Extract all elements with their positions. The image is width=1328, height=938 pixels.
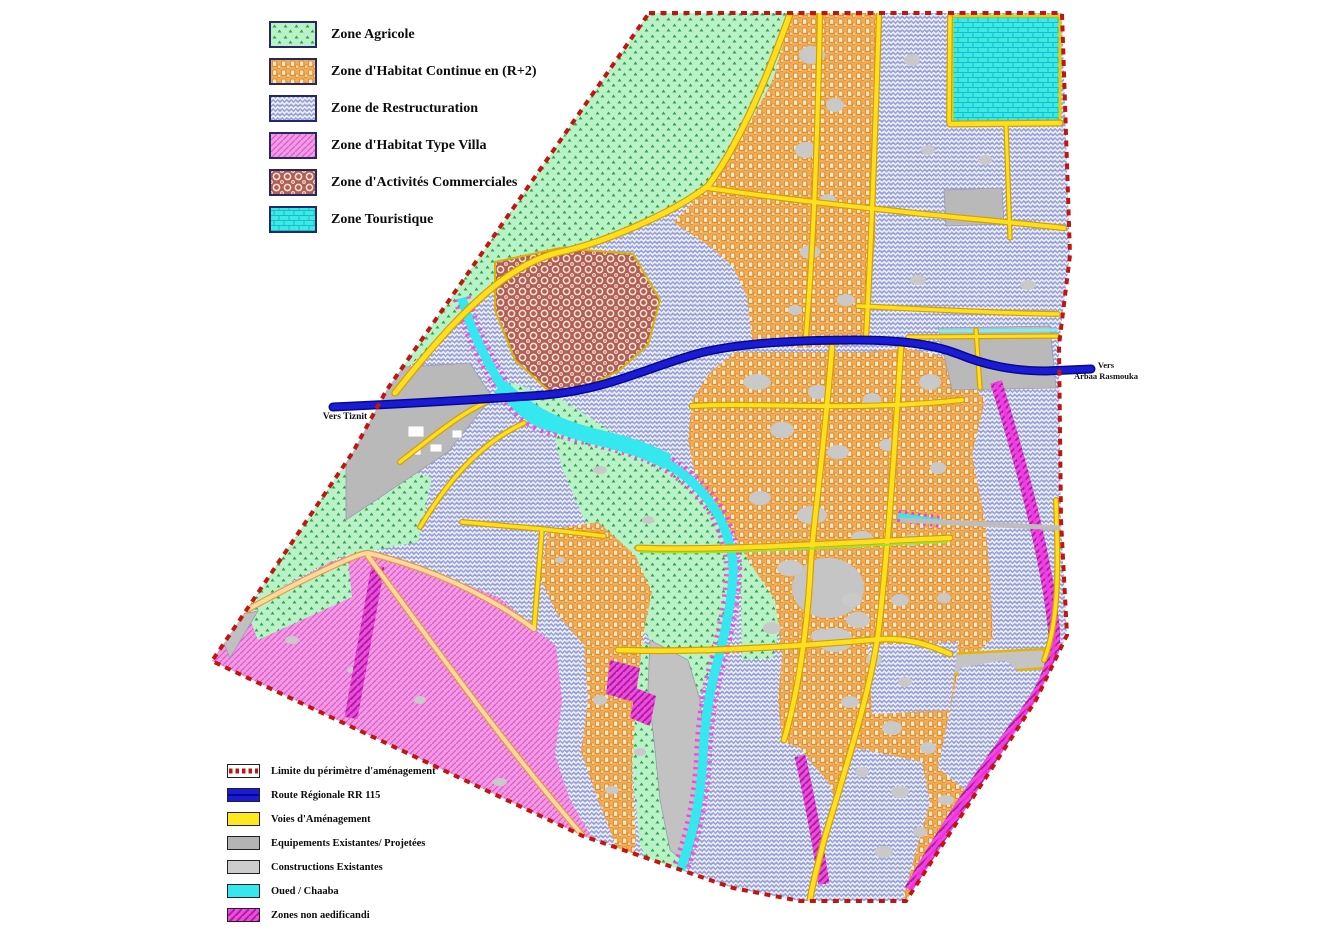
- legend-item-habitat: Zone d'Habitat Continue en (R+2): [269, 58, 537, 85]
- legend-label: Voies d'Aménagement: [271, 814, 371, 825]
- legend-item-route: Route Régionale RR 115: [227, 788, 436, 802]
- equipements-swatch: [227, 836, 260, 850]
- legend-symbols: Limite du périmètre d'aménagement Route …: [227, 764, 436, 922]
- legend-label: Zone Agricole: [331, 27, 415, 43]
- road-label-east-line1: Vers: [1058, 360, 1154, 371]
- limite-swatch: [227, 764, 260, 778]
- legend-item-touristique: Zone Touristique: [269, 206, 537, 233]
- villa-swatch: [269, 132, 317, 159]
- constructions-swatch: [227, 860, 260, 874]
- non-aedificandi-swatch: [227, 908, 260, 922]
- legend-label: Limite du périmètre d'aménagement: [271, 766, 436, 777]
- legend-label: Oued / Chaaba: [271, 886, 339, 897]
- habitat-swatch: [269, 58, 317, 85]
- legend-item-equipements: Equipements Existantes/ Projetées: [227, 836, 436, 850]
- restructuration-swatch: [269, 95, 317, 122]
- legend-item-commerciales: Zone d'Activités Commerciales: [269, 169, 537, 196]
- voies-swatch: [227, 812, 260, 826]
- zone-touristique-area: [952, 16, 1060, 122]
- legend-item-villa: Zone d'Habitat Type Villa: [269, 132, 537, 159]
- legend-item-agricole: Zone Agricole: [269, 21, 537, 48]
- legend-zones: Zone Agricole Zone d'Habitat Continue en…: [269, 21, 537, 233]
- legend-label: Equipements Existantes/ Projetées: [271, 838, 425, 849]
- road-label-west: Vers Tiznit: [300, 412, 390, 422]
- legend-label: Constructions Existantes: [271, 862, 383, 873]
- road-label-east: Vers Arbaa Rasmouka: [1058, 360, 1154, 382]
- legend-label: Route Régionale RR 115: [271, 790, 380, 801]
- road-label-east-line2: Arbaa Rasmouka: [1058, 371, 1154, 382]
- legend-item-voies: Voies d'Aménagement: [227, 812, 436, 826]
- agricole-swatch: [269, 21, 317, 48]
- touristique-swatch: [269, 206, 317, 233]
- route-swatch: [227, 788, 260, 802]
- legend-label: Zone d'Habitat Type Villa: [331, 138, 486, 154]
- legend-label: Zone de Restructuration: [331, 101, 478, 117]
- legend-label: Zone d'Habitat Continue en (R+2): [331, 64, 537, 80]
- oued-swatch: [227, 884, 260, 898]
- legend-label: Zone Touristique: [331, 212, 433, 228]
- legend-item-constructions: Constructions Existantes: [227, 860, 436, 874]
- legend-item-limite: Limite du périmètre d'aménagement: [227, 764, 436, 778]
- legend-label: Zone d'Activités Commerciales: [331, 175, 517, 191]
- map-page: Vers Tiznit Vers Arbaa Rasmouka Zone Agr…: [0, 0, 1328, 938]
- legend-item-restructuration: Zone de Restructuration: [269, 95, 537, 122]
- legend-item-oued: Oued / Chaaba: [227, 884, 436, 898]
- legend-item-non-aedificandi: Zones non aedificandi: [227, 908, 436, 922]
- legend-label: Zones non aedificandi: [271, 910, 370, 921]
- commerciales-swatch: [269, 169, 317, 196]
- zoning-map: [0, 0, 1328, 938]
